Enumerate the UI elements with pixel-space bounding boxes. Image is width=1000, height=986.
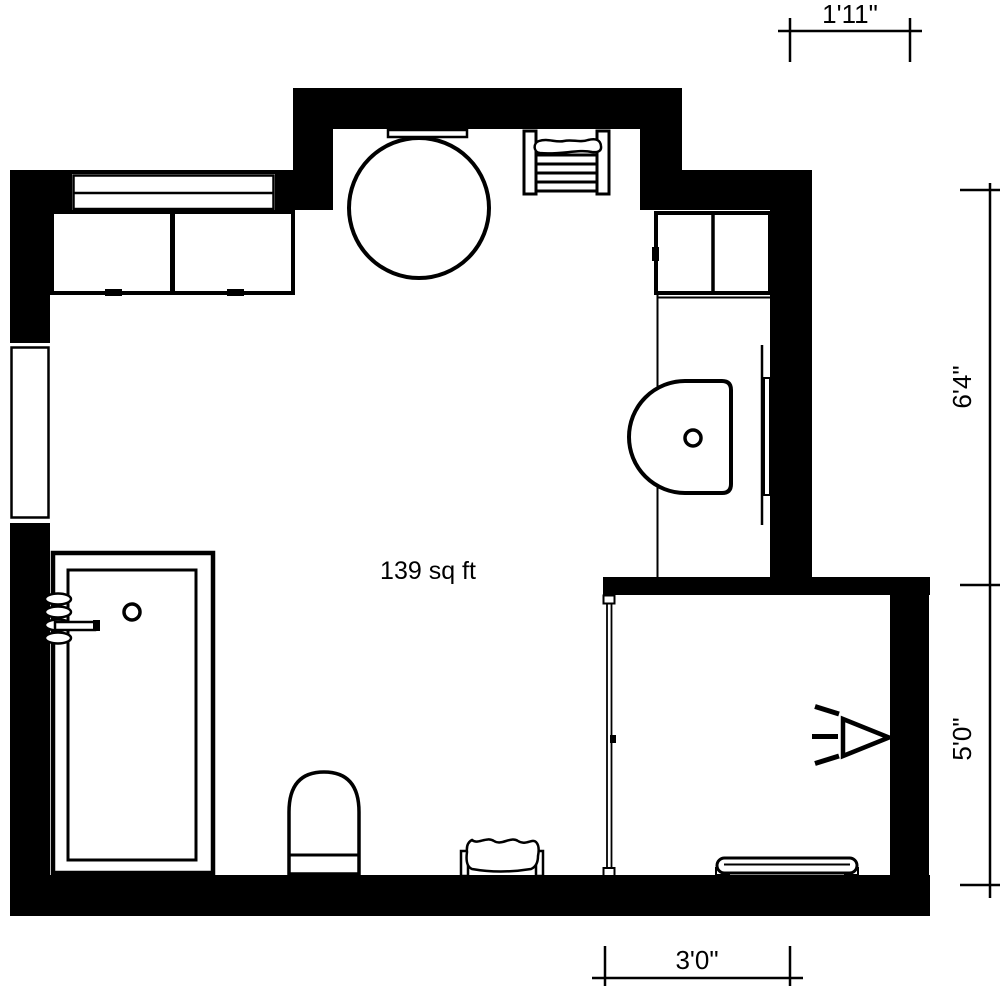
towel (535, 139, 601, 153)
vanity-cabinet (652, 213, 770, 293)
faucet-tip (93, 620, 100, 631)
area-label: 139 sq ft (380, 557, 476, 585)
dimension-label-right-lower: 5'0" (947, 717, 977, 760)
stool (289, 772, 359, 874)
window-left-opening (10, 343, 50, 523)
wall-right-upper (770, 170, 812, 595)
shower-mat (716, 858, 858, 875)
wall-bottom (10, 875, 930, 916)
faucet-coil (45, 594, 71, 605)
floor-plan-page: 1'11" 6'4" 5'0" 3'0" 139 sq ft (0, 0, 1000, 986)
glass-door-handle (610, 735, 616, 743)
vanity-handle (652, 247, 659, 261)
dimension-label-right-upper: 6'4" (947, 365, 977, 408)
sink-basin (629, 381, 731, 493)
sink (629, 381, 731, 493)
round-table (349, 138, 489, 278)
dimension-label-bottom: 3'0" (675, 945, 718, 975)
wall-shower-right (890, 577, 929, 916)
cabinet-handle-left (105, 289, 122, 296)
cabinet-handle-right (227, 289, 244, 296)
window-top (72, 174, 275, 211)
window-left (10, 343, 50, 523)
stool-body (289, 772, 359, 874)
radiator-rail-left (524, 131, 536, 194)
tub-drain (124, 604, 140, 620)
sink-drain (685, 430, 701, 446)
wall-left (10, 170, 50, 916)
glass-hinge-top (604, 596, 615, 604)
basket-towels (467, 839, 539, 871)
dimension-label-top: 1'11" (822, 0, 878, 29)
floor-plan: 1'11" 6'4" 5'0" 3'0" 139 sq ft (0, 0, 1000, 986)
bathtub (45, 553, 213, 873)
wall-shower-top (603, 577, 930, 595)
faucet-coil (45, 607, 71, 618)
faucet-spout (55, 622, 95, 630)
mirror-glass (764, 378, 770, 495)
wall-alcove-top (293, 88, 682, 129)
faucet-coil (45, 633, 71, 644)
wall-shelf (388, 130, 467, 137)
glass-hinge-bottom (604, 868, 615, 876)
wall-cabinet-double (52, 212, 293, 296)
